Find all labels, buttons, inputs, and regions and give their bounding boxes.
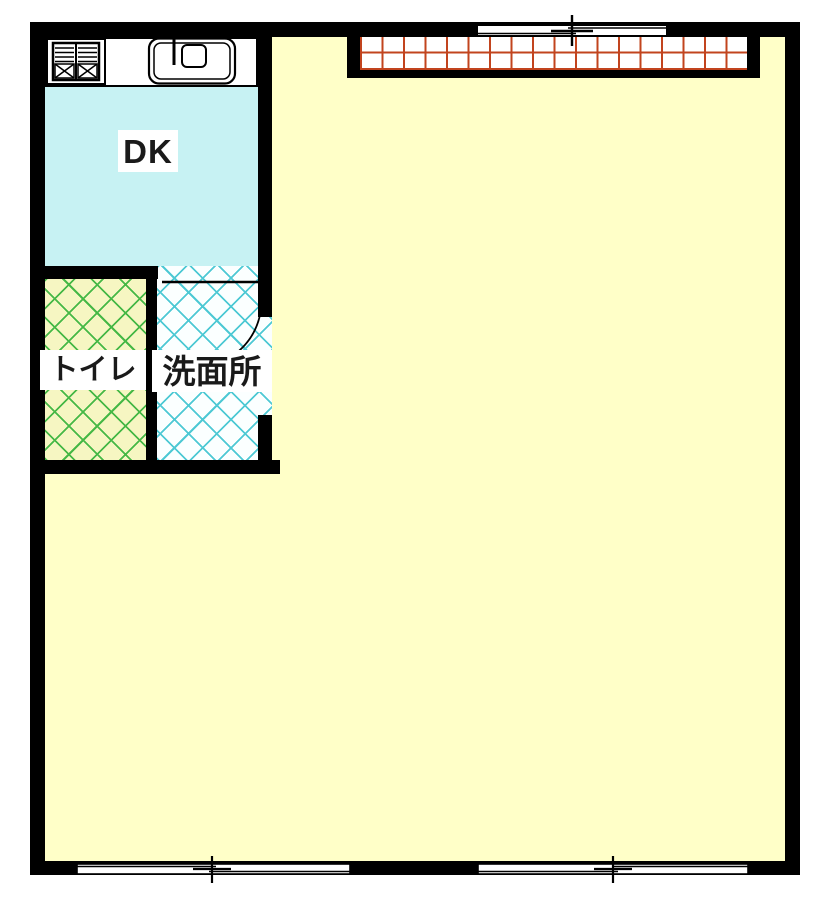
kitchen-fixtures xyxy=(45,37,258,87)
wall-sanitary-bottom xyxy=(30,460,280,474)
room-dk-label: DK xyxy=(118,130,178,172)
kitchen-counter xyxy=(45,37,258,87)
wall-dk-right xyxy=(258,37,272,317)
floorplan-canvas: DK トイレ 洗面所 xyxy=(0,0,822,900)
wall-dk-bottom xyxy=(30,266,158,279)
sink-icon xyxy=(149,39,235,84)
wall-bottom xyxy=(30,861,800,875)
lattice-window-frame-bottom xyxy=(347,70,760,78)
stove-icon xyxy=(47,39,105,84)
lattice-window-icon xyxy=(360,37,747,70)
room-toilet-label: トイレ xyxy=(40,350,146,390)
room-washroom-label: 洗面所 xyxy=(152,350,272,392)
wall-top xyxy=(30,22,800,37)
wall-left xyxy=(30,22,45,875)
wall-right xyxy=(785,22,800,875)
